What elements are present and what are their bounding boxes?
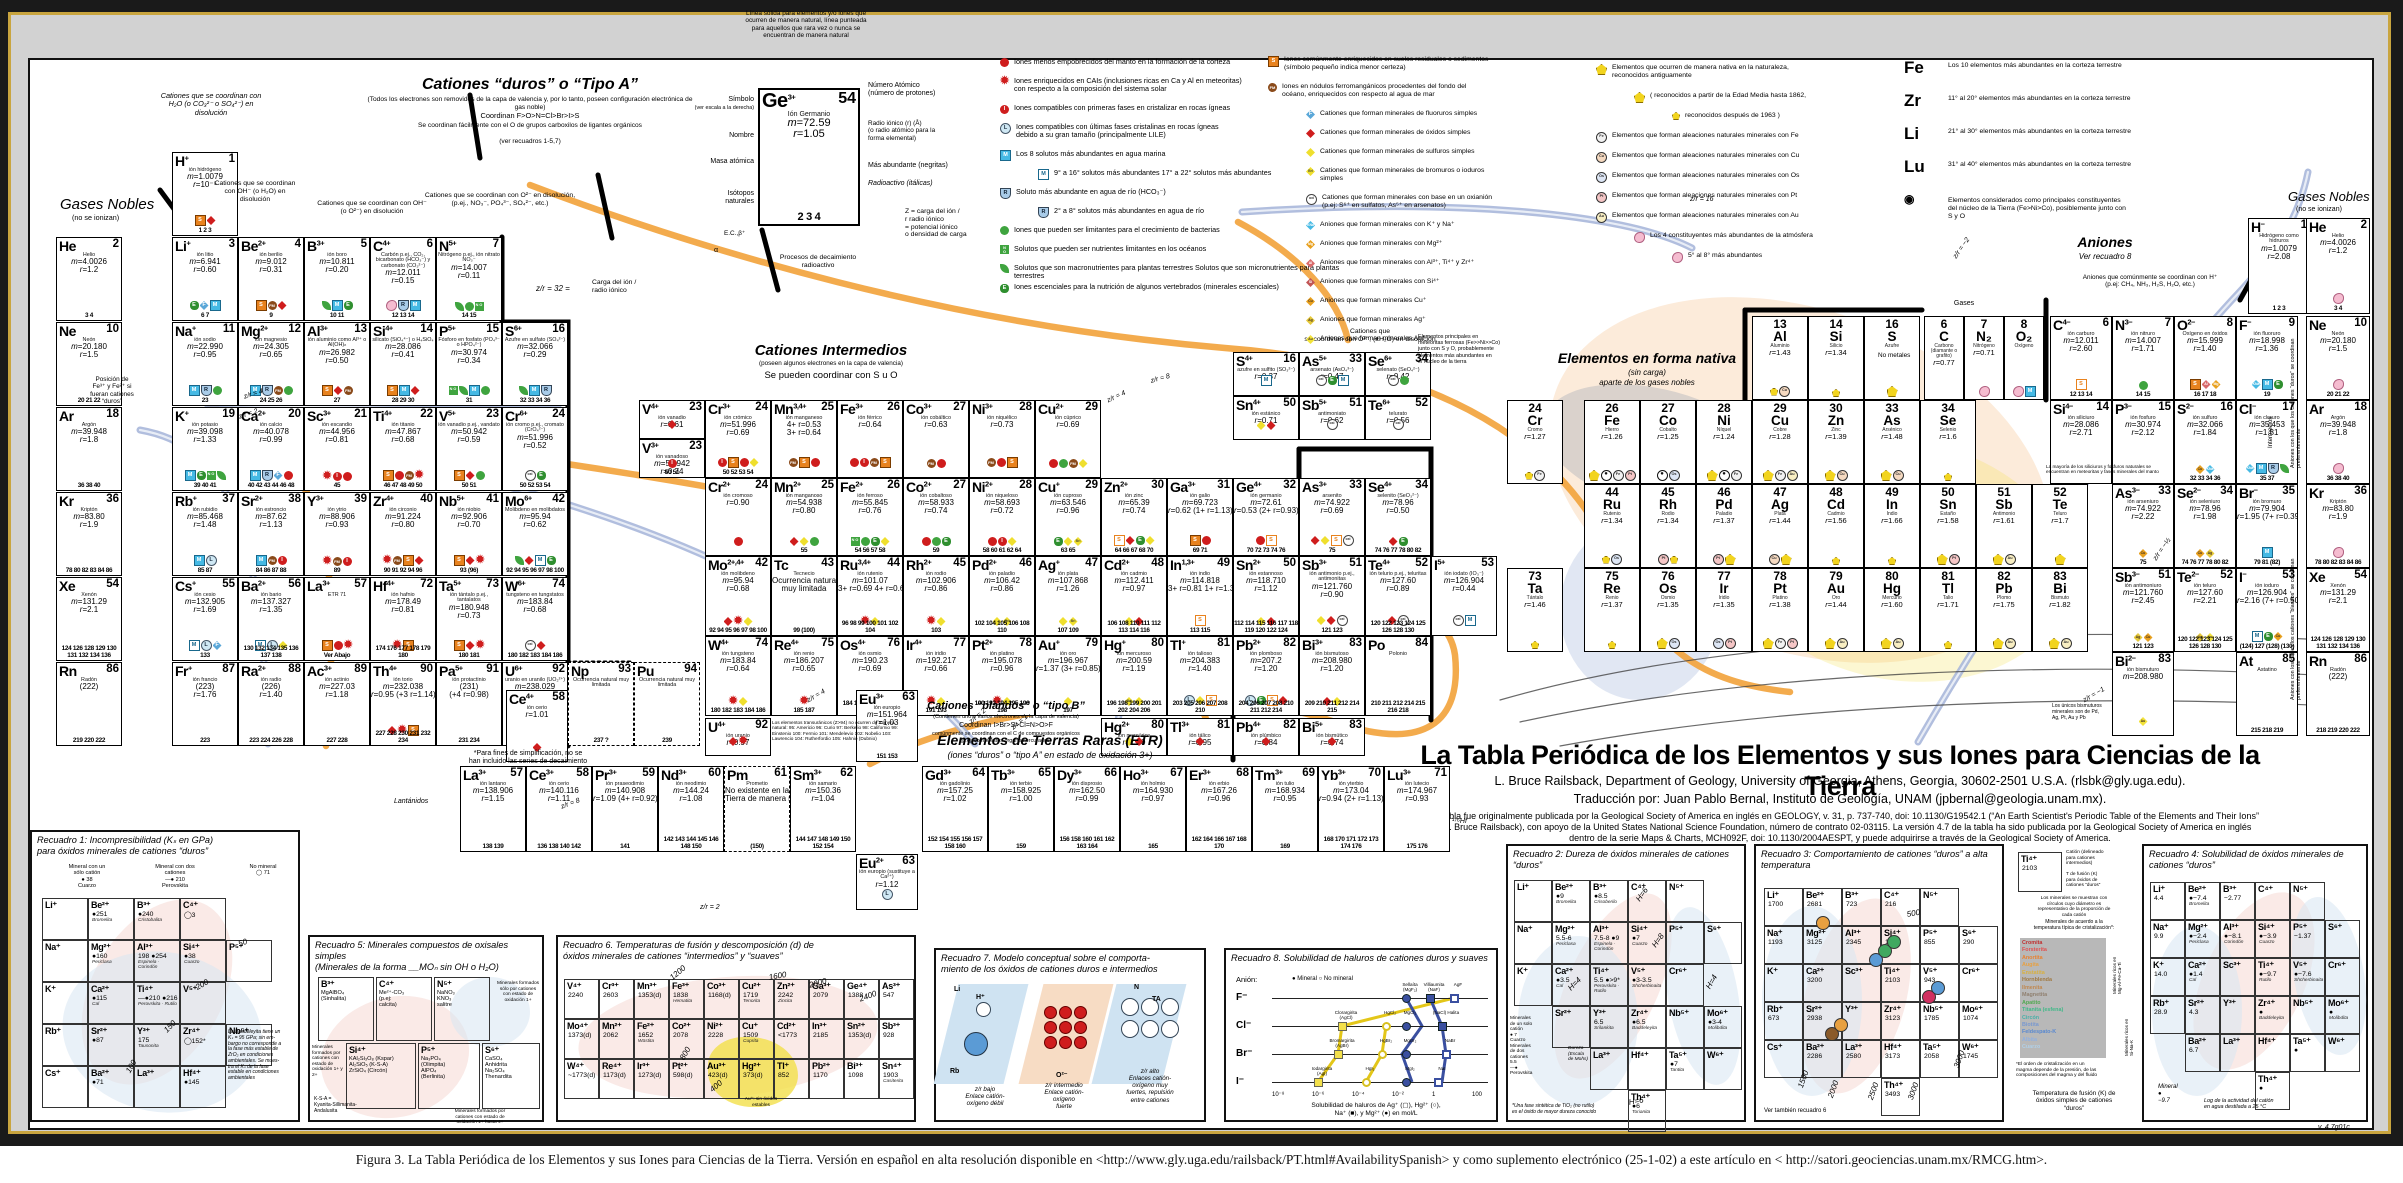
no-icon: N O [475,302,484,311]
pn-icon [1589,470,1600,481]
value-label: 1074 [1960,1015,1997,1022]
cell-as3-33: As3+33arsenitom=74.922r=0.69Soxi75 [1299,478,1365,556]
element-symbol: Se2− [2177,486,2201,500]
recuadro-6-cell: Pb²⁺1170 [809,1059,844,1099]
element-symbol: Po [1368,638,1385,652]
cell-zr4-40: Zr4+40ión circoniom=91.224r=0.80✹FMS90 9… [370,492,436,576]
value-line: r=1.84 [2175,429,2235,437]
od-icon [1306,129,1315,138]
recuadro-1-cell: Be²⁺●251Bromelita [88,898,134,940]
ion-label: La³⁺ [1843,1041,1880,1053]
ec-icon: E [537,471,546,480]
value-line: r=0.64 [838,421,902,429]
m2-icon: M [1261,375,1272,386]
ox-icon: oxi [1327,419,1338,430]
atomic-number: 74 [552,579,565,591]
element-symbol: Yb3+ [1321,768,1345,782]
sample-element-cell: Ge3+54Ión Germaniom=72.59r=1.052 3 4 [758,88,860,226]
r-icon: R [201,385,212,396]
cell-icons: Au [2034,638,2086,649]
fd-icon: F [213,641,222,650]
cell-icons: AgCu [2114,633,2172,642]
od-icon [1389,537,1398,546]
ion-label: Mn²⁺ [600,1020,633,1032]
recuadro-8-axis-tick: 10⁻² [1392,1092,1422,1099]
cell-cl-17: Cl−17ión clorurom=35.453r=1.81KNaMR35 37 [2236,400,2298,484]
atomic-number: 14 [420,324,433,336]
value-label: 6.5 [1591,1019,1627,1026]
lb-zr32b: Carga del ión / radio iónico [592,279,676,295]
legend-right-item: KNaAniones que forman minerales con K⁺ y… [1306,221,1646,230]
atomic-number: 47 [1085,558,1098,570]
sd-icon [1306,148,1315,157]
isotopes: 159 [989,844,1053,850]
recuadro-6-cell: Mo⁴⁺1373(d) [564,1019,599,1059]
isotopes: 89 [305,568,369,574]
hd-nativa2: (sin carga) [1545,368,1749,377]
value-line: r=0.93 [305,521,369,529]
mineral-label: Bromelita [1553,900,1589,905]
gd-icon [861,537,870,546]
marker-cB [1402,994,1411,1003]
atomic-number: 63 [902,856,915,868]
cell-cr3-24: Cr3+24ión crómicom=51.996r=0.69IS50 52 5… [705,400,771,478]
value-line: r=1.20 [1300,665,1364,673]
od-icon [466,641,475,650]
legend-text: Iones compatibles con últimas fases cris… [1016,123,1219,140]
isotopes: 32 33 34 36 [503,398,567,404]
cell-icons: FM [905,459,967,468]
cfe-icon: Fe [1731,470,1742,481]
hd-o2: Cationes que se coordinan con O²⁻ en dis… [424,192,576,208]
value-line: r=1.15 [461,795,525,803]
pn-icon [1707,470,1718,481]
fm-icon: FM [1069,459,1078,468]
element-symbol: V5+ [439,409,455,423]
value-line: r=1.19 [1102,665,1166,673]
ion-label: P⁵⁺ [419,1044,479,1056]
fm-icon: FM [789,458,798,467]
atomic-number: 14 [2096,402,2109,414]
ion-label: Zn²⁺ [775,980,808,992]
recuadro-8-mark-label: NaI [1412,1066,1472,1071]
cell-header: Si4−14 [2051,401,2111,416]
cell-header: Co2+27 [904,479,968,494]
cell-header: Te4+52 [1366,557,1430,572]
legend-text: Aniones que forman minerales con Al³⁺, T… [1320,259,1474,267]
cell-icons: ME [504,555,566,566]
isotopes: 55 [772,548,836,554]
native-cell-bi-83: 83BiBismutor=1.82Au [2032,568,2088,652]
isotopes: 85 87 [173,568,237,574]
recuadro-6-cell: Sn²⁺1353(d) [844,1019,879,1059]
recuadro-1-cell: Al³⁺198 ●254Espinela · Corindón [134,940,180,982]
atomic-number: 33 [2158,486,2171,498]
atomic-number: 83 [1349,720,1362,732]
recuadro-4-cell: Mg²⁺●−2.4Periclasa [2185,920,2220,958]
element-symbol: Cr [1508,414,1562,428]
atomic-number: 60 [708,768,721,780]
mineral-name: Biotita [2022,1022,2104,1029]
legend-icon-wrap: S [1268,56,1279,67]
sb-icon: S [2190,379,2201,390]
native-cell-pd-46: 46PdPaladior=1.37Pt [1696,484,1752,568]
cell-nd3-60: Nd3+60ión neodimiom=144.24r=1.08142 143 … [658,766,724,852]
legend-text: Los 8 solutos más abundantes en agua mar… [1016,150,1165,158]
od-icon [207,216,216,225]
value-line: r=1.9 [2307,513,2369,521]
publication-line-2: por L. Bruce Railsback), con apoyo de la… [1370,822,2310,832]
recuadro-5: Recuadro 5: Minerales compuestos de oxis… [308,935,544,1122]
cell-header: Tm3+69 [1253,767,1317,782]
atomic-number: 33 [1349,480,1362,492]
element-symbol: Ar [2309,402,2324,416]
mineral-label: Shcherbinaita [1629,984,1665,989]
red-cation-dot [1059,1006,1072,1019]
value-line: r=2.1 [2307,597,2369,605]
cell-fe3-26: Fe3+26ión férricor=0.64IFMS [837,400,903,478]
mineral-label: Crisoberilo [1591,900,1627,905]
legend-icon-wrap: I [1000,104,1009,114]
cell-icons: I [971,537,1033,546]
native-cell-cu-29: 29CuCobrer=1.28FeAu [1752,400,1808,484]
cl-icon: L [201,640,212,651]
cell-icons: oxi [504,640,566,651]
figure-caption: Figura 3. La Tabla Periódica de los Elem… [0,1152,2403,1168]
ion-label: K⁺ [43,983,87,995]
cell-v3-23: V3+23ión vanadosom=50.942r=0.74I50 51 [639,439,705,478]
isotopes: 58 60 61 62 64 [970,548,1034,554]
cell-ag-47: Ag+47ión platam=107.868r=1.26BrI107 109 [1035,556,1101,636]
element-symbol: Ni3+ [972,402,993,416]
r-icon: R [262,470,273,481]
isotopes: 63 65 [1036,548,1100,554]
lb-version: v. 4.7g01c [2318,1124,2378,1132]
cell-s6-16: S6+16Azufre en sulfato (SO₄²⁻)m=32.066r=… [502,322,568,406]
element-symbol: Bi3+ [1302,638,1323,652]
ion-label: V⁵⁺ [1629,965,1665,977]
element-symbol: W6+ [505,579,525,593]
recuadro-6-cell: Re⁴⁺1173(d) [599,1059,634,1099]
mineral-name: Ilmenita [2022,985,2104,992]
hd-blandos1: Cationes “blandos” o “tipo B” [900,700,1112,713]
recuadro-6-cell: Bi³⁺1098 [844,1059,879,1099]
native-cell-zn-30: 30ZnZincr=1.39Cu [1808,400,1864,484]
native-cell-se-34: 34SeSelenior=1.6 [1920,400,1976,484]
r-icon: R [2268,463,2279,474]
cell-ni2-28: Ni2+28ión niquelosom=58.693r=0.72I58 60 … [969,478,1035,556]
cell-icons: Au [1810,638,1862,649]
cell-header: Cl−17 [2237,401,2297,416]
sd-icon [750,458,759,467]
element-symbol: Tl [1921,582,1975,596]
element-symbol: Co3+ [906,402,931,416]
legend-right-item: FMIones en nódulos ferromangánicos proce… [1268,83,1608,99]
isotopes: 223 [173,738,237,744]
ion-label: S⁶⁺ [1705,923,1741,935]
recuadro-8-anion: I⁻ [1236,1076,1266,1088]
value-line: r=0.81 [305,436,369,444]
isotopes: 27 [305,398,369,404]
cell-pr3-59: Pr3+59ión praseodimiom=140.908r=1.09 (4+… [592,766,658,852]
cell-header: La3+57 [305,578,369,593]
cell-icons: Cu [1754,386,1806,397]
atomic-number: 24 [755,402,768,414]
cell-icons: SM [372,385,434,396]
cfe-icon: Fe [1775,638,1786,649]
isotopes: 96 98 99 100 101 102 104 [838,621,902,634]
value-label: 1373(d) [565,1032,598,1039]
cell-cu2-29: Cu2+29ión cúpricor=0.69FM [1035,400,1101,478]
value-line: r=0.68 [706,585,770,593]
ci-icon: I [343,557,352,566]
recuadro-6-cell: W⁴⁺~1773(d) [564,1059,599,1099]
atomic-number: 36 [106,494,119,506]
isotopes: 174 176 177 178 179 180 [371,646,435,659]
atomic-number: 59 [642,768,655,780]
ion-label: Zr⁴⁺ [1882,1003,1919,1015]
cell-header: Th4+90 [371,663,435,678]
isotopes: 227 228 [305,738,369,744]
cpt-icon: Pt [1658,554,1669,565]
cell-y3-39: Y3+39ión ytriom=88.906r=0.93✹FMI89 [304,492,370,576]
mineral-label: Shcherbinaita [2291,978,2324,983]
value-line: r=0.62 (1+ r=1.13) [1168,507,1232,515]
element-symbol: N5+ [439,239,456,253]
cell-header: Re4+75 [772,637,836,652]
fm-icon: FM [870,458,879,467]
atomic-number: 28 [1019,480,1032,492]
recuadro-4-cell: Na⁺9.9 [2150,920,2185,958]
value-label: 673 [1765,1015,1802,1022]
legend-text: Iones menos empobrecidos del manto en la… [1014,58,1230,66]
cell-header: Ar18 [2307,401,2369,416]
value-line: r=1.9 [57,521,121,529]
value-label: 6.7 [2186,1047,2219,1054]
mineral-name: Hornblenda [2022,977,2104,984]
legend-text: reconocidos después de 1963 ) [1685,112,1780,120]
aag-icon: Ag [1306,316,1315,325]
cell-gd3-64: Gd3+64ión gadoliniom=157.25r=1.02152 154… [922,766,988,852]
element-symbol: As3− [2115,486,2139,500]
sd-icon [1257,421,1266,430]
value-line: 3+ r=0.69 4+ r=0.67 [838,585,902,593]
cloud-icon [2333,547,2344,558]
legend-text: Cationes que forman minerales con base e… [1322,194,1492,210]
cell-header: Fe2+26 [838,479,902,494]
ion-label: Ta⁵⁺ [1667,1049,1703,1061]
ccu-icon: Cu [1893,470,1904,481]
value-label: 14.0 [2151,971,2184,978]
isotopes: 50 51 [640,470,704,476]
cell-header: N3−7 [2113,317,2173,332]
ion-label: Pt²⁺ [670,1060,703,1072]
value-line: r=0.68 [371,436,435,444]
ion-label: La³⁺ [135,1067,179,1079]
value-line: r=1.71 [2113,345,2173,353]
element-symbol: Cd2+ [1104,558,1129,572]
recuadro-5-cell: N⁵⁺NaNO₃ KNO₃ salitre [434,977,490,1041]
recuadro-1-legend: Mineral con un sólo catión ● 38 Cuarzo [44,864,130,890]
recuadro-2: Recuadro 2: Dureza de óxidos minerales d… [1506,844,1746,1122]
cell-header: Mg2+12 [239,323,303,338]
cell-icons: I [641,459,703,468]
value-line: r=1.40 [239,691,303,699]
value-line: r=2.16 (7+ r=0.50) [2237,597,2297,605]
cell-header: As3−33 [2113,485,2173,500]
no-icon: N O [851,537,860,546]
isotopes: 28 29 30 [371,398,435,404]
sample-hard-cell: Ti⁴⁺2103 [2018,852,2062,892]
element-symbol: As [1865,414,1919,428]
mineral-name: Forsterita [2022,947,2104,954]
acu-icon: Cu [2144,633,2153,642]
element-symbol: Se4+ [1368,480,1392,494]
element-symbol: Hf4+ [373,579,394,593]
value-label: 2058 [1921,1053,1958,1060]
element-symbol: Te [2033,498,2087,512]
fd-icon: F [274,471,283,480]
element-symbol: Tb3+ [991,768,1015,782]
smp-isotopos: Isótopos naturales [668,190,754,206]
od-icon [334,386,343,395]
sd-icon [1079,459,1088,468]
isotopes: 112 114 115 116 117 118 119 120 122 124 [1234,621,1298,634]
atomic-number: 67 [1170,768,1183,780]
value-line: r=1.71 [1921,601,1975,609]
od-icon [466,471,475,480]
cell-ni3-28: Ni3+28ión niquélicor=0.73FMS [969,400,1035,478]
ion-label: Na⁺ [2151,921,2184,933]
r3l-cap1: Catión (delineado para cationes intermed… [2066,850,2132,867]
isotopes: 185 187 [772,708,836,714]
isotopes: 50 52 53 54 [503,483,567,489]
marker-sY [1338,1022,1347,1031]
m2-icon: M [2252,631,2263,642]
element-symbol: Ta5+ [439,579,461,593]
hd-etr2: (iones “duros” o “tipo A” en estado de o… [620,750,1480,760]
legend-text: Cationes que forman minerales de fluorur… [1320,110,1477,118]
element-symbol: Ce3+ [529,768,553,782]
cell-tb3-65: Tb3+65ión terbiom=158.925r=1.00159 [988,766,1054,852]
cell-header: In1,3+49 [1168,557,1232,572]
ion-label: Ta⁵⁺ [1921,1041,1958,1053]
m-icon: M [2025,386,2036,397]
cell-sb3-51: Sb3−51ión antimoniurom=121.760r=2.45AgCu… [2112,568,2174,652]
pn2-icon [1670,556,1678,564]
value-line: r=2.22 [2113,513,2173,521]
recuadro-4-note: Log de la actividad del catión en agua d… [2204,1098,2354,1110]
mineral-label: Cristobalita [135,918,179,923]
rd-icon [734,537,743,546]
mineral-label: Casiterita [880,1079,913,1084]
cell-icons: RM [372,300,434,311]
rd-icon [988,537,997,546]
asi-icon: Si [1306,278,1315,287]
recuadro-3-cell: Ca²⁺3200 [1803,964,1842,1002]
lb-bism: Los únicos bismuturos minerales son de P… [2052,704,2124,721]
element-symbol: Gd3+ [925,768,951,782]
element-symbol: Os [1641,582,1695,596]
value-label: ●−7.6 [2291,971,2324,978]
recuadro-6-cell: Tl⁺852 [774,1059,809,1099]
mineral-label: Tantita [1667,1068,1703,1073]
value-line: r=0.89 [1366,585,1430,593]
value-line: r=0.74 [1102,507,1166,515]
lb-gnr2: (no se ionizan) [2296,206,2396,214]
value-line: r=1.34 [1585,517,1639,525]
aal-icon: Al [2202,380,2211,389]
legend-icon-wrap [1000,264,1009,275]
cell-dy3-66: Dy3+66ión disprosiom=162.50r=0.99156 158… [1054,766,1120,852]
cell-v5-23: V5+23ión vanadio p.ej., vandatom=50.942r… [436,407,502,491]
cloud-icon [386,300,397,311]
atomic-number: 64 [972,768,985,780]
cl-icon: L [1000,123,1011,134]
atomic-number: 80 [1151,720,1164,732]
value-line: r=1.95 (7+ r=0.39) [2237,513,2297,521]
ion-label: Th⁴⁺ [2256,1073,2289,1085]
aal-icon: Al [1306,259,1315,268]
cell-header: Au+79 [1036,637,1100,652]
recuadro-6-cell: Ir³⁺1273(d) [634,1059,669,1099]
value-line: r=1.26 [1036,585,1100,593]
atomic-number: 1 [229,154,235,166]
ak-icon: KNa [2246,464,2255,473]
mineral-label: Tenorita [740,999,773,1004]
cell-bi2-83: Bi2−83ión bismuturom=208.980Au [2112,652,2174,736]
ion-label: Mg²⁺ [1553,923,1589,935]
cell-header: Ne10 [57,323,121,338]
legend-text: Elementos que forman aleaciones naturale… [1612,132,1799,140]
atomic-number: 6 [427,239,433,251]
native-cell-au-79: 79AuOror=1.44Au [1808,568,1864,652]
legend-text: Aniones que forman minerales Ag⁺ [1320,316,1426,324]
cell-yb3-70: Yb3+70ión yterbiom=173.04r=0.94 (2+ r=1.… [1318,766,1384,852]
value-label: 1700 [1765,901,1802,908]
red-cation-dot [1074,1021,1087,1034]
ox-icon: oxi [1306,194,1317,205]
pn2-icon [1525,472,1533,480]
isotopes: 20 21 22 [2307,392,2369,398]
lb-lant: Lantánidos [394,798,456,806]
rd-icon [811,458,820,467]
native-cell-ag-47: 47AgPlatar=1.44Cu [1752,484,1808,568]
value-line: r=1.05 [760,129,858,140]
ion-label: Y³⁺ [2221,997,2254,1009]
value-line: r=1.61 [1977,517,2031,525]
native-cell-n₂-7: 7N₂Nitrógenor=0.71 [1964,316,2004,400]
element-symbol: Kr [59,494,74,508]
recuadro-7-label: H⁺ [976,994,1006,1002]
cell-kr-36: Kr36Kriptónm=83.80r=1.978 80 82 83 84 86 [56,492,122,576]
isotopes: (150) [725,844,789,850]
native-cell-hg-80: 80HgMercurior=1.60Au [1864,568,1920,652]
mineral-name: Anortita [2022,955,2104,962]
mineral-color-list: CromitaForsteritaAnortitaAugitaEnstatita… [2020,938,2106,1058]
value-line: r=1.56 [1809,517,1863,525]
isotopes: 36 38 40 [2307,476,2369,482]
element-symbol: Er3+ [1189,768,1210,782]
recuadro-2-title: Recuadro 2: Dureza de óxidos minerales d… [1508,846,1744,871]
marker-sY [1314,1078,1323,1087]
cell-te6-52: Te6+52telurator=0.56oxi [1365,396,1431,440]
ccu-icon: Cu [1837,470,1848,481]
m-icon: M [1000,150,1011,161]
value-line: r=1.39 [1809,433,1863,441]
cell-header: Ce3+58 [527,767,591,782]
cell-header: Rn86 [57,663,121,678]
